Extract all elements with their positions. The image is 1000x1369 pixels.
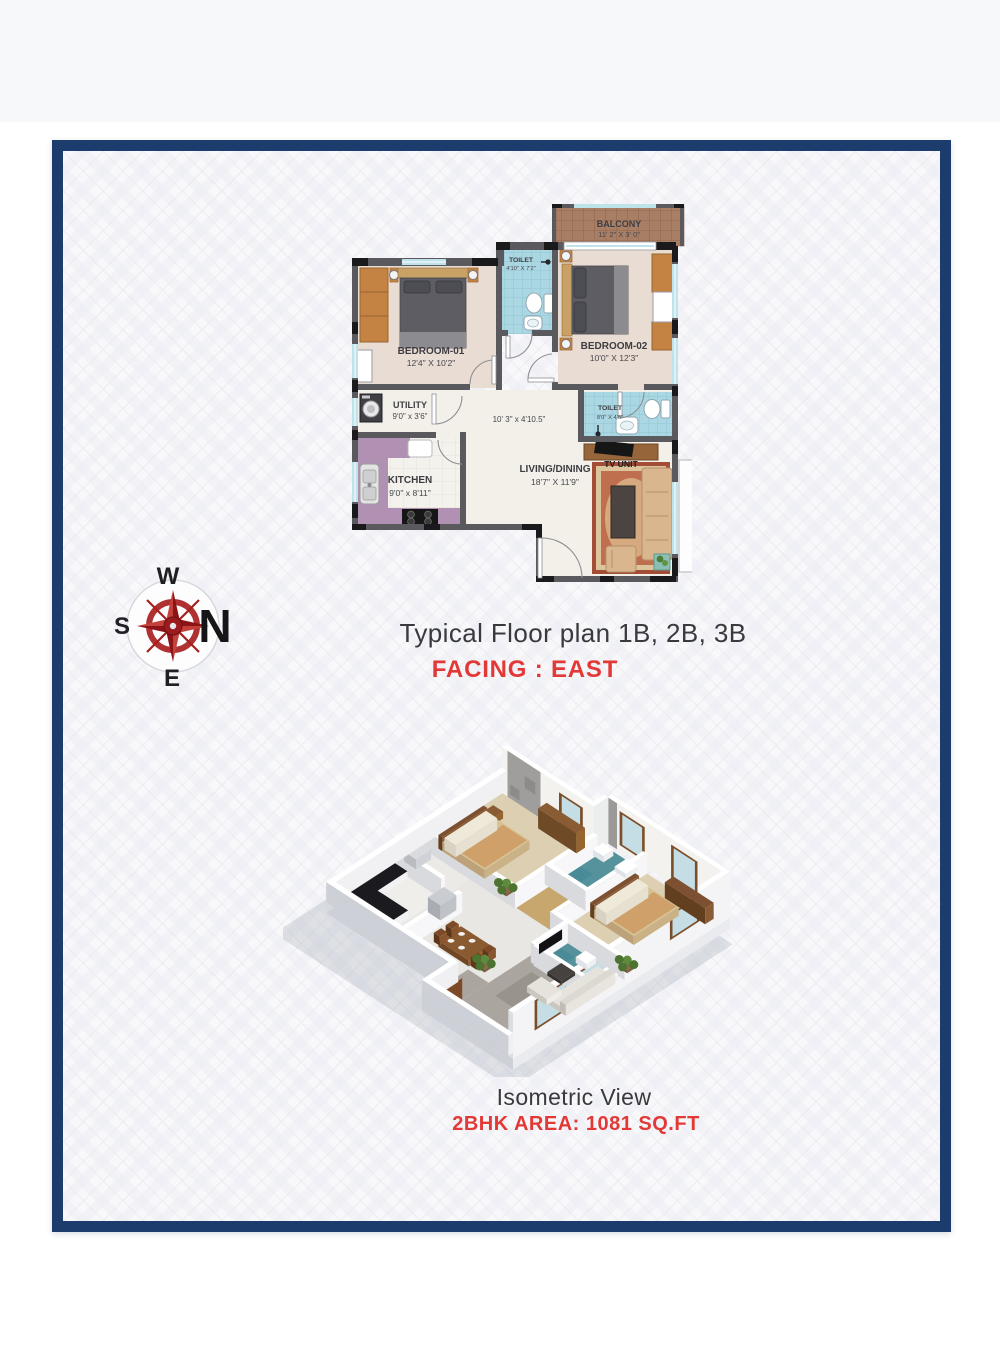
balcony-label: BALCONY [597,219,642,229]
isometric-render [283,727,743,1077]
tv-unit-label: TV UNIT [604,459,638,469]
bedroom2-dims: 10'0" X 12'3" [590,353,639,363]
floor-plan-2d: BALCONY 11' 2" X 3' 0" TOILET 4'10" X 7'… [348,196,692,594]
toilet1-label: TOILET [509,257,534,264]
brochure-page: { "titles": { "plan_title": "Typical Flo… [0,0,1000,1369]
kitchen-label: KITCHEN [388,475,432,486]
page-border-frame: BALCONY 11' 2" X 3' 0" TOILET 4'10" X 7'… [52,140,951,1232]
passage-dims: 10' 3" x 4'10.5" [493,415,546,424]
toilet2-label: TOILET [598,405,623,412]
utility-label: UTILITY [393,400,427,410]
balcony-dims: 11' 2" X 3' 0" [598,230,640,239]
utility-dims: 9'0" x 3'6" [393,412,428,421]
bedroom2-label: BEDROOM-02 [581,341,648,352]
facing-direction: FACING : EAST [63,656,940,684]
utility-fixtures [360,394,382,422]
living-dims: 18'7" X 11'9" [531,477,579,487]
compass-west: W [157,563,180,590]
toilet2-dims: 8'0" X 4'6" [597,415,623,421]
kitchen-dims: 9'0" x 8'11" [389,488,431,498]
bedroom1-label: BEDROOM-01 [398,346,465,357]
bedroom1-dims: 12'4" X 10'2" [407,358,456,368]
plan-title: Typical Floor plan 1B, 2B, 3B [63,618,940,649]
toilet1-dims: 4'10" X 7'2" [506,266,536,272]
iso-view-title: Isometric View [63,1084,940,1111]
living-label: LIVING/DINING [519,464,590,475]
iso-area-text: 2BHK AREA: 1081 SQ.FT [63,1113,940,1136]
